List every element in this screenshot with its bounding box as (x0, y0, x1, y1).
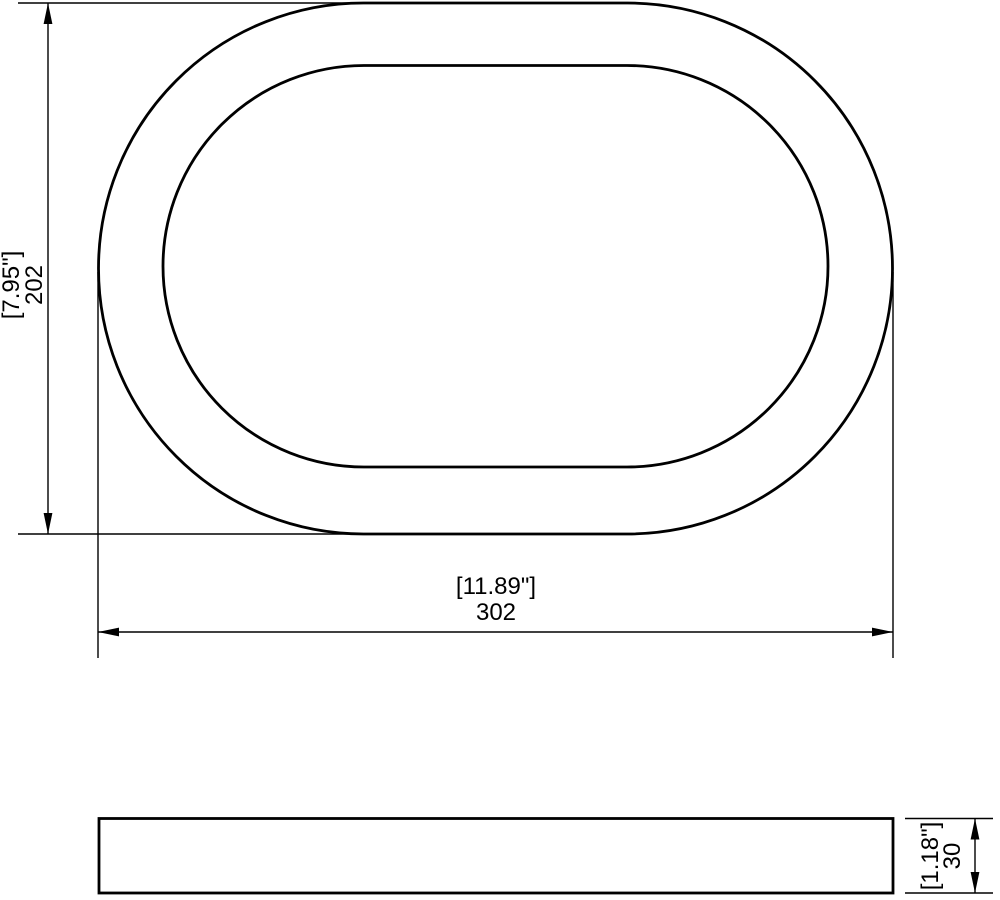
profile-rectangle-outline (99, 819, 893, 894)
thickness-arrow-up-icon (971, 819, 980, 840)
width-dim-mm-label: 302 (476, 599, 516, 626)
outer-oval-outline (99, 3, 893, 534)
width-arrow-right-icon (872, 628, 893, 637)
width-arrow-left-icon (98, 628, 119, 637)
width-dim-inches-label: [11.89"] (456, 573, 536, 600)
height-arrow-down-icon (44, 513, 53, 534)
height-dim-mm-label: 202 (21, 265, 48, 305)
thickness-arrow-down-icon (971, 872, 980, 893)
thickness-dimension: [1.18"] 30 (905, 819, 993, 894)
technical-drawing-canvas: [7.95"] 202 [11.89"] 302 [1.18"] 30 (0, 0, 1000, 900)
height-dimension: [7.95"] 202 (0, 3, 495, 534)
drawing-page: [7.95"] 202 [11.89"] 302 [1.18"] 30 (0, 0, 1000, 900)
top-view-oval-ring (99, 3, 893, 534)
inner-oval-outline (163, 66, 828, 468)
width-dimension: [11.89"] 302 (98, 272, 893, 658)
height-arrow-up-icon (44, 3, 53, 24)
thickness-dim-mm-label: 30 (939, 843, 966, 870)
side-view-profile (99, 819, 893, 894)
